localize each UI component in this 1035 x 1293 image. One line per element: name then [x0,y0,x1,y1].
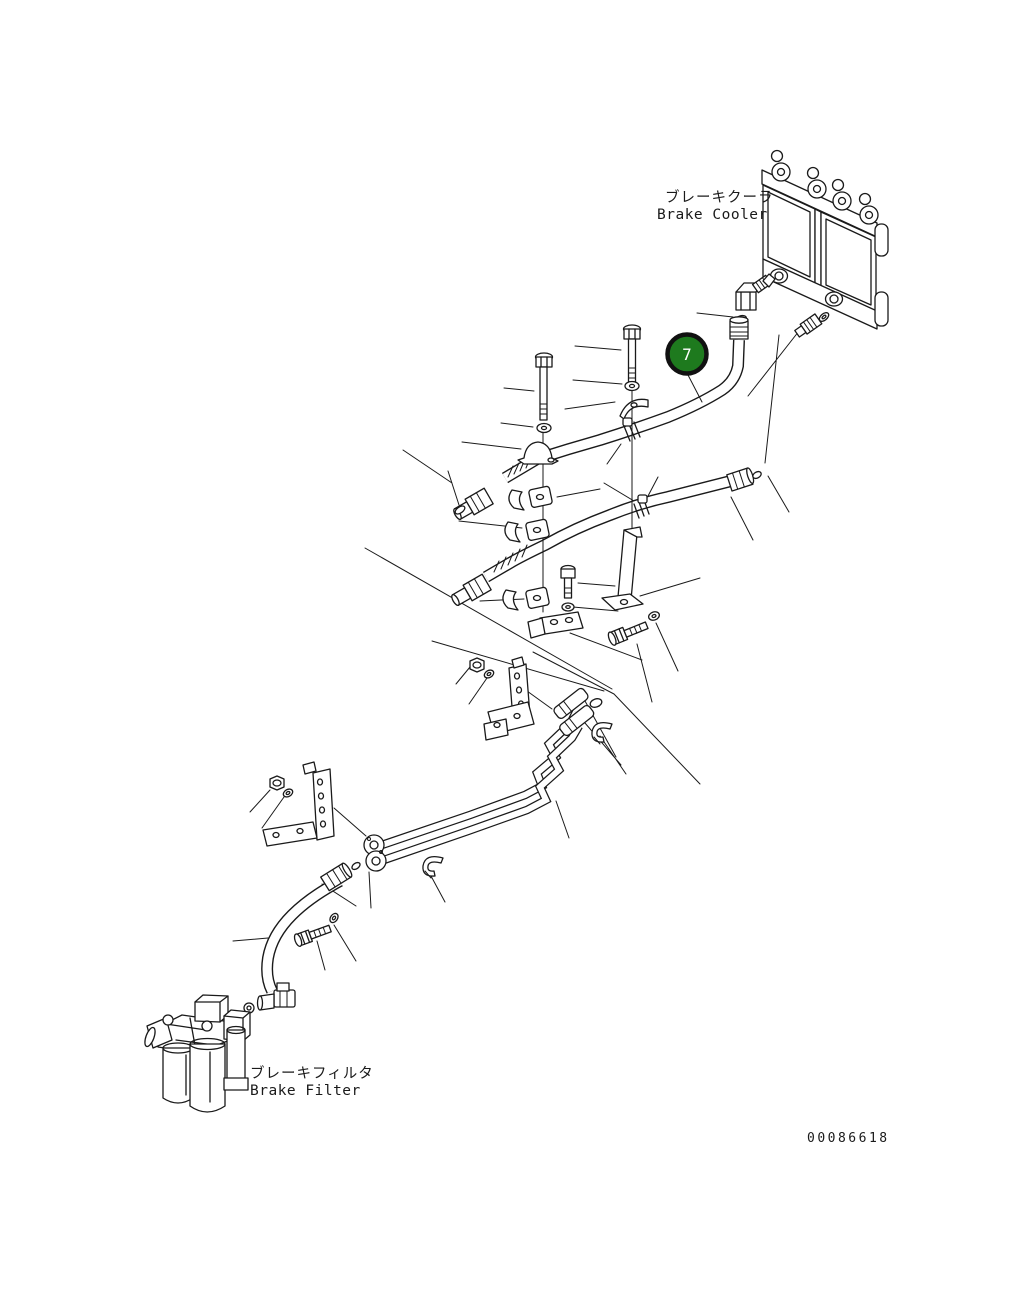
parts-diagram-canvas: 7 ブレーキクーラ Brake Cooler ブレーキフィルタ Brake Fi… [0,0,1035,1293]
washer-center-bracket [483,668,495,679]
o-ring-adapter [818,311,831,323]
brake-filter-label-jp: ブレーキフィルタ [250,1064,374,1082]
double-pipe-drawing [364,687,600,871]
cushion-set-2 [505,519,550,542]
l-bracket [602,527,643,610]
bolt-axis-lines [543,380,632,612]
o-ring-filter-hose [351,861,362,871]
diagram-labels: ブレーキクーラ Brake Cooler ブレーキフィルタ Brake Filt… [250,188,890,1146]
leader-lines [233,313,799,970]
cushion-set-3 [503,587,550,610]
adapter-fitting [794,314,822,339]
left-bracket [263,762,334,846]
washer-filter-bolt [328,912,339,924]
washer-right [625,382,639,391]
brake-cooler-drawing [762,151,888,330]
bolt-left [536,353,553,420]
washer-diagonal-bolt [647,610,660,621]
bolt-right [624,325,641,382]
cushion-set-1 [509,486,553,510]
filter-hose-drawing [267,862,353,991]
clamp-plate-bracket [528,612,583,638]
bolt-short [561,566,575,599]
lower-hose-drawing [449,467,755,609]
callout-balloon[interactable]: 7 [668,335,707,403]
hook-clamp-pipe [592,723,612,744]
drawing-number: 00086618 [807,1131,890,1146]
hook-clamp-hose [423,857,443,878]
center-bracket [484,657,534,740]
callout-number: 7 [682,345,692,364]
bolt-diagonal-filter [293,922,332,947]
brake-cooler-label-en: Brake Cooler [657,207,768,223]
brake-cooler-label-jp: ブレーキクーラ [665,188,774,206]
bolt-diagonal-right [607,618,649,646]
brake-filter-label-en: Brake Filter [250,1083,361,1099]
construction-lines [365,548,700,784]
nut-left-bracket [270,776,284,790]
parts-diagram-page: 7 ブレーキクーラ Brake Cooler ブレーキフィルタ Brake Fi… [0,0,1035,1293]
nut-center-bracket [470,658,484,672]
washer-short-bolt [562,603,574,611]
callout-leader-line [688,375,702,402]
clamp-strap [620,399,648,419]
washer-left [537,424,551,433]
brake-filter-drawing [143,995,250,1112]
plug-pipe-end [589,697,603,709]
